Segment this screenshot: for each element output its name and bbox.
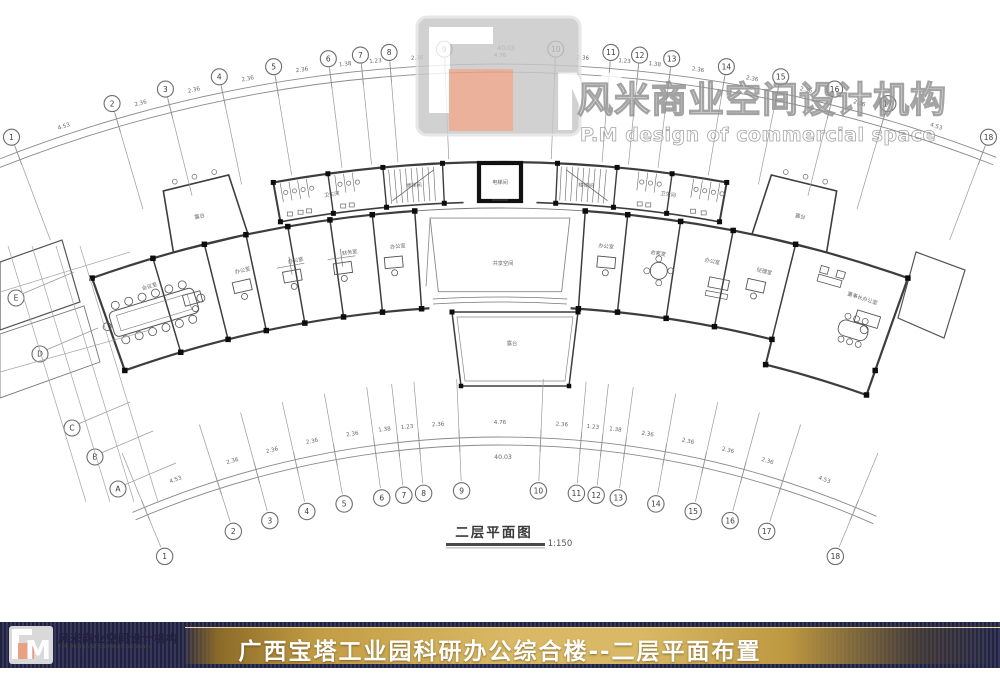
svg-text:4.53: 4.53 [169,475,183,485]
svg-text:1.23: 1.23 [586,424,599,431]
svg-text:4.53: 4.53 [817,475,831,485]
svg-text:B: B [92,453,97,462]
svg-text:露台: 露台 [194,211,206,221]
svg-text:6: 6 [326,54,331,63]
svg-text:2.36: 2.36 [295,66,309,74]
svg-text:经理室: 经理室 [756,265,773,277]
svg-text:2.36: 2.36 [761,457,775,466]
svg-text:6: 6 [379,494,384,503]
svg-text:7: 7 [401,491,406,500]
svg-text:1.23: 1.23 [401,424,414,431]
svg-text:2.36: 2.36 [555,422,568,429]
svg-text:4: 4 [304,507,309,516]
svg-text:会客室: 会客室 [650,248,667,258]
svg-text:4: 4 [217,73,222,82]
svg-text:财务室: 财务室 [341,247,358,257]
svg-text:4.76: 4.76 [494,420,507,426]
svg-text:14: 14 [651,500,661,509]
svg-text:露台: 露台 [794,211,806,221]
svg-text:18: 18 [984,133,994,142]
svg-text:办公室: 办公室 [704,256,721,267]
svg-text:15: 15 [688,507,698,516]
svg-text:楼梯间: 楼梯间 [406,180,422,189]
svg-text:8: 8 [421,489,426,498]
svg-text:2.36: 2.36 [691,66,705,74]
sheet-title: 广西宝塔工业园科研办公综合楼--二层平面布置 [0,632,1000,666]
svg-text:13: 13 [667,54,677,63]
svg-text:2: 2 [110,99,115,108]
svg-text:办公室: 办公室 [234,264,251,276]
svg-text:2.36: 2.36 [187,86,201,95]
furniture [97,247,881,349]
floor-plan-drawing: 4.532.362.362.362.361.381.232.364.762.36… [0,0,1000,674]
svg-text:办公室: 办公室 [598,241,614,251]
svg-text:1: 1 [162,552,167,561]
svg-text:电梯间: 电梯间 [492,178,508,186]
svg-text:13: 13 [613,494,623,503]
svg-text:12: 12 [591,491,601,500]
svg-text:2.36: 2.36 [241,75,255,83]
drawing-sheet: 4.532.362.362.362.361.381.232.364.762.36… [0,0,1000,674]
svg-text:3: 3 [267,516,272,525]
svg-text:P.M design of commercial space: P.M design of commercial space [580,124,936,146]
svg-text:11: 11 [606,48,616,57]
svg-text:卫生间: 卫生间 [323,189,340,199]
svg-text:2.36: 2.36 [134,99,148,108]
svg-text:E: E [14,294,19,303]
svg-text:17: 17 [762,527,772,536]
svg-text:8: 8 [387,48,392,57]
svg-text:5: 5 [342,500,347,509]
svg-text:A: A [115,485,121,494]
svg-text:共享空间: 共享空间 [493,259,514,267]
svg-text:办公室: 办公室 [390,241,406,251]
svg-text:16: 16 [725,516,735,525]
svg-text:18: 18 [831,552,841,561]
dimension-arc-bottom: 4.532.362.362.362.361.381.232.364.762.36… [132,420,876,524]
svg-text:2.36: 2.36 [681,438,695,446]
svg-text:2.36: 2.36 [305,438,319,446]
svg-text:1.38: 1.38 [339,61,352,68]
svg-text:7: 7 [358,51,363,60]
svg-text:5: 5 [271,62,276,71]
footer-bar: M 风米商业空间设计机构 P.M design of commercial sp… [0,620,1000,672]
svg-text:10: 10 [534,487,544,496]
svg-text:2.36: 2.36 [346,431,360,439]
svg-text:2.36: 2.36 [265,446,279,455]
svg-text:卫生间: 卫生间 [660,189,677,199]
watermark: M风米商业空间设计机构P.M design of commercial spac… [417,17,947,149]
svg-text:3: 3 [163,85,168,94]
svg-text:1.38: 1.38 [378,426,392,434]
plan-caption: 二层平面图1:150 [446,525,572,549]
svg-text:1.38: 1.38 [648,61,661,68]
svg-text:12: 12 [635,51,645,60]
svg-text:11: 11 [572,489,582,498]
svg-text:40.03: 40.03 [494,454,512,461]
svg-text:1:150: 1:150 [548,539,573,549]
svg-text:1.23: 1.23 [369,58,382,65]
svg-text:2.36: 2.36 [226,457,240,466]
svg-text:2.36: 2.36 [641,431,655,439]
svg-text:风米商业空间设计机构: 风米商业空间设计机构 [577,80,947,121]
svg-text:会议室: 会议室 [141,280,158,292]
svg-text:2.36: 2.36 [721,446,735,455]
svg-text:1.38: 1.38 [609,426,623,434]
svg-text:1: 1 [9,133,14,142]
svg-text:2: 2 [231,527,236,536]
building-walls [0,162,965,398]
svg-text:二层平面图: 二层平面图 [455,525,533,541]
svg-text:2.36: 2.36 [432,422,445,429]
svg-text:露台: 露台 [507,339,517,347]
svg-text:4.53: 4.53 [57,122,71,132]
svg-text:楼梯间: 楼梯间 [578,180,594,189]
svg-text:C: C [69,424,74,433]
svg-text:14: 14 [722,62,732,71]
svg-text:董事长办公室: 董事长办公室 [847,289,879,306]
svg-text:9: 9 [459,487,464,496]
